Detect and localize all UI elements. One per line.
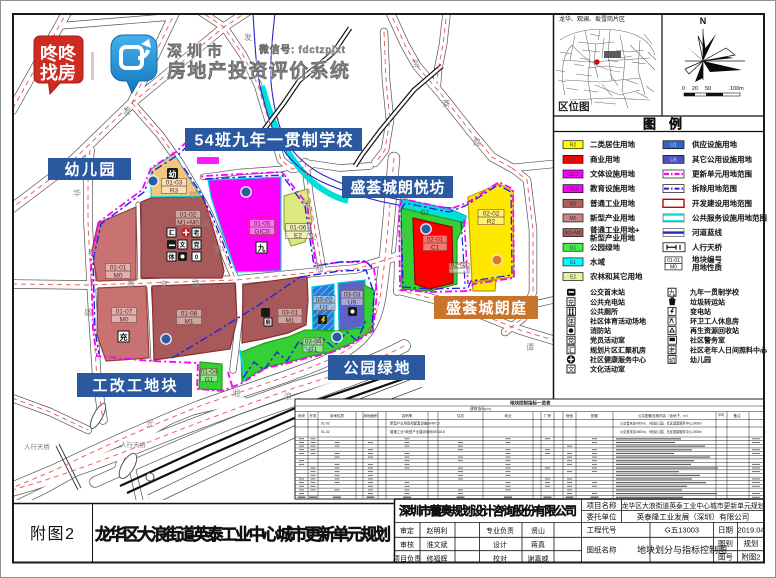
svg-text:GIC5: GIC5 [254, 229, 270, 236]
svg-text:微信号: fdctzpjxt: 微信号: fdctzpjxt [258, 43, 346, 56]
svg-text:公园绿地: 公园绿地 [590, 242, 620, 252]
svg-text:社区老年人日间照料中心: 社区老年人日间照料中心 [690, 345, 767, 354]
svg-text:赵明利: 赵明利 [427, 526, 448, 535]
svg-text:汇: 汇 [168, 229, 174, 237]
svg-text:泰: 泰 [88, 247, 96, 257]
svg-text:公共厕所: 公共厕所 [590, 307, 618, 316]
svg-text:用地面积: 用地面积 [364, 413, 378, 418]
svg-text:03-02: 03-02 [316, 297, 333, 304]
svg-text:深圳市蕾奥规划设计咨询股份有限公司: 深圳市蕾奥规划设计咨询股份有限公司 [399, 503, 577, 518]
svg-text:公交首末站4500m、9班幼儿园、社区健康服务中心1000m: 公交首末站4500m、9班幼儿园、社区健康服务中心1000m [620, 421, 702, 426]
svg-text:拆除用地范围: 拆除用地范围 [692, 183, 737, 193]
svg-text:项目名称: 项目名称 [587, 500, 617, 510]
svg-text:地块划分与指标控制图: 地块划分与指标控制图 [637, 544, 727, 555]
svg-text:用地性质: 用地性质 [330, 413, 344, 418]
svg-text:二类居住用地: 二类居住用地 [590, 139, 635, 149]
svg-text:N: N [700, 16, 707, 26]
svg-text:02-02: 02-02 [483, 211, 500, 218]
svg-text:路: 路 [473, 137, 481, 147]
svg-text:幼儿园: 幼儿园 [690, 355, 711, 364]
svg-text:附图2: 附图2 [30, 525, 74, 543]
svg-text:20: 20 [692, 86, 698, 92]
svg-text:路: 路 [214, 244, 222, 254]
svg-text:教育设施用地: 教育设施用地 [590, 183, 635, 193]
svg-text:100m: 100m [730, 86, 744, 92]
svg-text:C1: C1 [431, 245, 440, 252]
svg-text:党员活动室: 党员活动室 [590, 336, 625, 345]
svg-text:54班九年一贯制学校: 54班九年一贯制学校 [195, 130, 354, 149]
svg-text:党: 党 [193, 241, 199, 249]
svg-text:02-03: 02-03 [451, 262, 468, 269]
svg-text:01-04: 01-04 [201, 369, 218, 376]
svg-text:九年一贯制学校: 九年一贯制学校 [690, 288, 739, 297]
svg-text:体: 体 [568, 317, 575, 326]
svg-text:龙华区大浪街道英泰工业中心城市更新单元规划: 龙华区大浪街道英泰工业中心城市更新单元规划 [94, 524, 391, 544]
svg-text:图 例: 图 例 [643, 117, 682, 132]
svg-text:人行天桥: 人行天桥 [692, 242, 722, 252]
svg-text:路: 路 [316, 262, 324, 272]
svg-text:社区体育活动场地: 社区体育活动场地 [590, 317, 646, 326]
svg-text:E2: E2 [294, 233, 302, 240]
svg-text:蒋真: 蒋真 [531, 540, 545, 549]
svg-text:老: 老 [669, 345, 676, 354]
svg-text:03-01: 03-01 [282, 310, 299, 317]
svg-text:U1: U1 [320, 305, 329, 312]
svg-text:厂房: 厂房 [544, 413, 552, 418]
svg-text:公共充电站: 公共充电站 [590, 297, 625, 306]
svg-text:03-04: 03-04 [305, 339, 322, 346]
svg-text:湘: 湘 [232, 388, 240, 398]
svg-text:华: 华 [189, 190, 197, 200]
svg-text:公园绿地: 公园绿地 [344, 359, 410, 377]
svg-text:商业: 商业 [505, 413, 513, 418]
svg-text:房地产投资评价系统: 房地产投资评价系统 [167, 59, 349, 82]
svg-text:普通工业用地: 普通工业用地 [590, 198, 635, 208]
svg-text:R2: R2 [487, 219, 496, 226]
svg-text:新型产业用房和配套设施36497.5: 新型产业用房和配套设施36497.5 [390, 421, 440, 426]
svg-text:九: 九 [257, 243, 266, 253]
svg-text:文: 文 [568, 365, 575, 374]
svg-text:M0: M0 [113, 273, 122, 280]
svg-text:02-01: 02-01 [427, 237, 444, 244]
svg-text:充: 充 [120, 332, 128, 342]
svg-text:图纸名称: 图纸名称 [587, 545, 617, 555]
svg-text:03-03: 03-03 [344, 292, 361, 299]
svg-text:文化活动室: 文化活动室 [590, 365, 625, 374]
svg-text:浪: 浪 [284, 391, 292, 401]
svg-text:50: 50 [705, 86, 711, 92]
svg-text:G1: G1 [205, 377, 214, 384]
svg-text:新型产业用地: 新型产业用地 [590, 212, 635, 222]
svg-text:M1: M1 [570, 201, 577, 207]
svg-text:区位图: 区位图 [558, 100, 590, 113]
svg-text:路: 路 [192, 278, 200, 288]
svg-text:社区健康服务中心: 社区健康服务中心 [590, 355, 646, 364]
svg-text:E1: E1 [570, 260, 576, 266]
svg-text:再生资源回收站: 再生资源回收站 [690, 326, 739, 335]
svg-text:审定: 审定 [400, 526, 414, 535]
svg-text:01-01: 01-01 [110, 265, 127, 272]
svg-text:C1: C1 [570, 157, 577, 163]
svg-text:南: 南 [398, 231, 406, 241]
svg-text:党: 党 [568, 336, 575, 345]
svg-text:工程代号: 工程代号 [587, 525, 617, 535]
svg-text:河道蓝线: 河道蓝线 [692, 227, 722, 237]
svg-text:盛荟城朗庭: 盛荟城朗庭 [446, 299, 527, 317]
svg-text:九: 九 [669, 288, 676, 297]
svg-text:用地性质: 用地性质 [692, 262, 722, 272]
svg-text:M1: M1 [285, 318, 294, 325]
svg-text:环卫工人休息房: 环卫工人休息房 [690, 317, 739, 326]
svg-text:R3: R3 [170, 188, 179, 195]
svg-text:光: 光 [146, 418, 154, 428]
svg-text:M0: M0 [570, 216, 577, 222]
svg-text:安: 安 [160, 279, 168, 289]
svg-text:G1: G1 [420, 210, 429, 217]
svg-text:其它公用设施用地: 其它公用设施用地 [692, 154, 752, 164]
svg-text:贤山: 贤山 [531, 526, 545, 535]
svg-text:平均: 平均 [718, 412, 724, 417]
svg-text:01-08: 01-08 [181, 311, 198, 318]
svg-text:审核: 审核 [400, 540, 414, 549]
svg-text:找房: 找房 [40, 62, 76, 83]
svg-text:01-02: 01-02 [321, 430, 330, 434]
svg-text:盛: 盛 [84, 307, 92, 317]
svg-text:专业负责: 专业负责 [486, 526, 514, 535]
svg-text:规划: 规划 [744, 538, 759, 548]
svg-text:汇: 汇 [568, 346, 575, 354]
svg-text:人行天桥: 人行天桥 [120, 440, 147, 449]
svg-text:老: 老 [192, 229, 199, 237]
svg-text:0: 0 [682, 86, 685, 92]
svg-text:文: 文 [178, 241, 186, 249]
svg-text:咚咚: 咚咚 [40, 43, 77, 64]
svg-text:龙华、观澜、坂雪岗片区: 龙华、观澜、坂雪岗片区 [559, 15, 625, 23]
svg-text:更新单元用地范围: 更新单元用地范围 [692, 169, 752, 179]
svg-text:M0: M0 [670, 264, 677, 270]
svg-text:01-02: 01-02 [180, 212, 197, 219]
svg-text:GIC2: GIC2 [567, 172, 579, 178]
svg-text:G1: G1 [309, 347, 318, 354]
svg-text:淮文斌: 淮文斌 [427, 540, 448, 549]
svg-text:社区警务室: 社区警务室 [690, 336, 725, 345]
svg-text:开发: 开发 [310, 413, 318, 418]
svg-text:消防站: 消防站 [590, 326, 611, 335]
svg-text:农林和其它用地: 农林和其它用地 [590, 271, 643, 281]
svg-text:义: 义 [202, 219, 210, 228]
svg-text:备注: 备注 [734, 413, 742, 418]
svg-text:R2: R2 [570, 143, 577, 149]
svg-text:G五13003: G五13003 [665, 526, 699, 535]
svg-text:01-02: 01-02 [321, 422, 330, 426]
svg-text:泰: 泰 [127, 279, 135, 289]
svg-text:英泰隆工业发展（深圳）有限公司: 英泰隆工业发展（深圳）有限公司 [637, 512, 750, 522]
svg-text:01-05: 01-05 [254, 221, 271, 228]
svg-text:建筑指标(m): 建筑指标(m) [470, 406, 492, 411]
svg-text:公共配套设施内容（含地下，m）: 公共配套设施内容（含地下，m） [638, 413, 690, 418]
svg-text:幼: 幼 [669, 355, 676, 364]
svg-text:厕: 厕 [265, 319, 270, 326]
svg-text:工改工地块: 工改工地块 [93, 376, 178, 394]
svg-text:U9: U9 [670, 157, 677, 163]
svg-text:设计: 设计 [493, 540, 507, 549]
svg-text:商业用地: 商业用地 [590, 154, 620, 164]
svg-text:01-03: 01-03 [166, 180, 183, 187]
svg-text:水域: 水域 [590, 256, 605, 266]
svg-text:深圳市: 深圳市 [167, 42, 222, 60]
svg-text:附图2: 附图2 [741, 553, 760, 562]
svg-text:普通工业+新型产业建设用地39318.6: 普通工业+新型产业建设用地39318.6 [390, 429, 445, 434]
svg-text:01-06: 01-06 [290, 225, 307, 232]
svg-text:U9: U9 [348, 300, 357, 307]
svg-text:M1+M0: M1+M0 [565, 231, 582, 237]
svg-text:01-07: 01-07 [116, 309, 133, 316]
svg-text:发: 发 [123, 106, 131, 116]
svg-text:宿舍: 宿舍 [566, 413, 574, 418]
svg-text:安: 安 [442, 98, 450, 108]
svg-text:地块: 地块 [298, 413, 306, 418]
svg-text:人行天桥: 人行天桥 [24, 442, 51, 451]
svg-text:M1: M1 [184, 319, 193, 326]
svg-text:M0: M0 [119, 317, 128, 324]
svg-text:垃圾转运站: 垃圾转运站 [690, 297, 725, 306]
svg-text:地块控制指标一览表: 地块控制指标一览表 [510, 400, 551, 407]
svg-text:幼: 幼 [169, 169, 177, 179]
svg-text:2019.04: 2019.04 [737, 526, 764, 535]
svg-text:规划片区汇聚机房: 规划片区汇聚机房 [590, 345, 646, 354]
svg-text:图号: 图号 [718, 553, 733, 562]
svg-text:宝: 宝 [412, 58, 420, 68]
svg-text:容积率: 容积率 [402, 413, 413, 418]
svg-text:配套: 配套 [591, 413, 599, 418]
svg-text:U1: U1 [670, 143, 677, 149]
svg-text:住宅: 住宅 [457, 413, 465, 418]
svg-text:华: 华 [303, 199, 311, 209]
svg-text:E2: E2 [570, 275, 576, 281]
svg-text:01-01: 01-01 [667, 258, 680, 264]
svg-text:充: 充 [568, 297, 575, 306]
svg-text:GIC5: GIC5 [567, 187, 579, 193]
svg-text:华: 华 [73, 188, 81, 198]
svg-text:变电站: 变电站 [690, 307, 711, 316]
svg-text:幼儿园: 幼儿园 [65, 160, 115, 178]
svg-text:体: 体 [168, 253, 175, 261]
svg-text:M1+M0: M1+M0 [177, 220, 199, 227]
svg-text:开发建设用地范围: 开发建设用地范围 [692, 198, 752, 208]
svg-text:谭: 谭 [526, 343, 534, 352]
svg-text:公交首末站: 公交首末站 [590, 288, 625, 297]
svg-text:龙华区大浪街道英泰工业中心城市更新单元规划: 龙华区大浪街道英泰工业中心城市更新单元规划 [622, 501, 765, 510]
svg-text:公共服务设施用地范围: 公共服务设施用地范围 [692, 212, 767, 222]
svg-text:盛荟城朗悦坊: 盛荟城朗悦坊 [351, 178, 445, 196]
svg-text:供应设施用地: 供应设施用地 [692, 139, 737, 149]
svg-text:日期: 日期 [718, 526, 733, 535]
svg-text:公交首末站4500m、9班幼儿园、社区健康服务中心1000m: 公交首末站4500m、9班幼儿园、社区健康服务中心1000m [620, 429, 702, 434]
svg-text:发: 发 [244, 32, 252, 42]
svg-text:委托单位: 委托单位 [587, 512, 617, 522]
svg-text:文体设施用地: 文体设施用地 [590, 169, 635, 179]
svg-text:G1: G1 [570, 245, 577, 251]
svg-text:图别: 图别 [718, 539, 733, 548]
svg-text:新型产业用地: 新型产业用地 [590, 233, 635, 243]
